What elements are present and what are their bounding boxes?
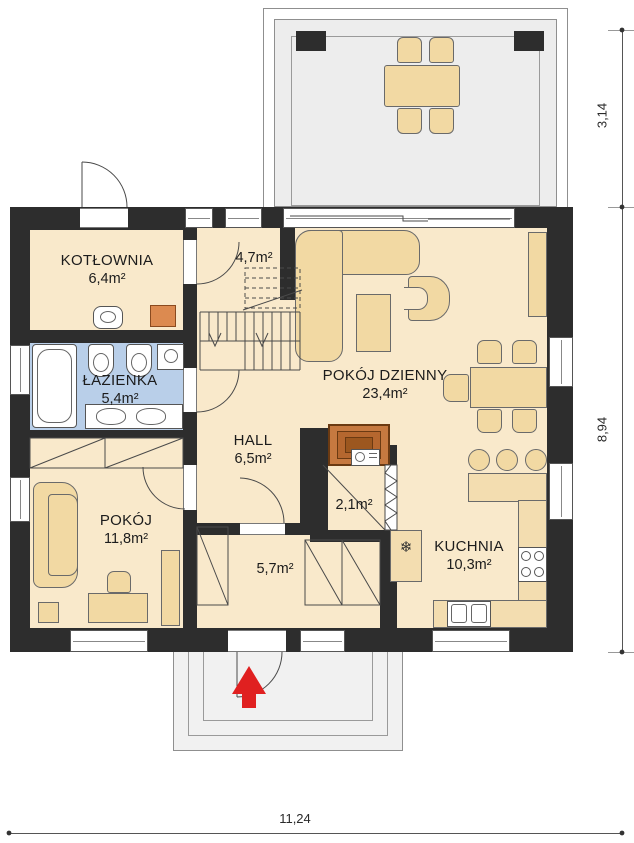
wall [300,428,328,530]
room-area: 5,4m² [60,390,180,409]
label-hall: HALL 6,5m² [203,431,303,469]
room-name: KOTŁOWNIA [40,251,174,270]
terrace-chair [397,37,422,63]
washbasin [96,408,126,425]
stove-insert-burner [355,452,365,462]
room-area: 10,3m² [389,556,549,575]
kitchen-sink-basin [451,604,467,623]
bar-stool [525,449,547,471]
bidet-bowl [131,353,147,372]
window [225,208,262,228]
door-arc [82,162,127,207]
floor-connector [280,300,295,445]
utility-sink-basin [100,311,116,323]
door-opening-lazienka [183,368,197,412]
terrace-glass-door [283,208,515,228]
terrace-column [514,31,544,51]
coffee-table [356,294,391,352]
toilet-bowl [93,353,109,372]
room-area: 6,4m² [40,270,174,289]
room-name: ŁAZIENKA [60,371,180,390]
stove-insert-lines [369,457,377,458]
room-name: KUCHNIA [389,537,549,556]
label-lazienka: ŁAZIENKA 5,4m² [60,371,180,409]
window [10,345,30,395]
room-area: 4,7m² [214,249,294,268]
floor-plan: 3,14 8,94 11,24 [0,0,634,843]
label-schody: 4,7m² [214,249,294,268]
label-pokoj: POKÓJ 11,8m² [66,511,186,549]
washing-machine-drum [164,349,178,363]
window [300,630,345,652]
room-name: POKÓJ DZIENNY [295,366,475,385]
room-area: 6,5m² [203,450,303,469]
room-area: 23,4m² [295,385,475,404]
dining-table [470,367,547,408]
terrace-chair [429,37,454,63]
cabinet [161,550,180,626]
door-opening-kotlownia [183,240,197,284]
terrace-chair [429,108,454,134]
bar-stool [468,449,490,471]
door-opening-entrance [228,630,286,652]
kitchen-counter-top [468,473,547,502]
boiler-icon [150,305,176,327]
washbasin [136,408,166,425]
label-wiatrolap: 5,7m² [235,560,315,579]
terrace-table [384,65,460,107]
terrace-column [296,31,326,51]
dimension-house-width: 11,24 [255,811,335,826]
room-wiatrolap-floor [197,533,380,628]
terrace-chair [397,108,422,134]
dining-chair [512,340,537,364]
label-kotlownia: KOTŁOWNIA 6,4m² [40,251,174,289]
wall [183,523,240,535]
dimension-line-right [622,30,623,652]
corner-sofa-side [295,230,343,362]
room-name: HALL [203,431,303,450]
room-area: 2,1m² [314,496,394,515]
wall [30,330,197,343]
dimension-line-bottom [9,833,622,834]
label-pokoj-dzienny: POKÓJ DZIENNY 23,4m² [295,366,475,404]
door-opening-kotlownia-exterior [80,208,128,228]
window [549,463,573,520]
wall-unit [528,232,547,317]
desk [88,593,148,623]
side-table [38,602,59,623]
dining-chair [512,409,537,433]
window [10,477,30,522]
stove-insert-lines [369,453,377,454]
label-kuchnia: KUCHNIA 10,3m² [389,537,549,575]
dining-chair [477,340,502,364]
armchair-seat [404,287,428,310]
wall [285,523,323,535]
door-opening-pokoj [183,465,197,510]
terrace [263,8,568,208]
wall [310,530,397,542]
dimension-house-depth: 8,94 [595,408,610,452]
room-area: 11,8m² [66,530,186,549]
wall [30,430,197,438]
bar-stool [496,449,518,471]
dimension-terrace-depth: 3,14 [595,94,610,138]
kitchen-sink-basin [471,604,487,623]
room-area: 5,7m² [235,560,315,579]
door-opening-wiatrolap [240,523,285,535]
window [549,337,573,387]
dim-tick [608,652,634,653]
label-spizarnia: 2,1m² [314,496,394,515]
desk-chair [107,571,131,593]
window [185,208,213,228]
dim-tick [608,30,634,31]
dim-tick [608,207,634,208]
window [70,630,148,652]
dining-chair [477,409,502,433]
window [432,630,510,652]
room-name: POKÓJ [66,511,186,530]
